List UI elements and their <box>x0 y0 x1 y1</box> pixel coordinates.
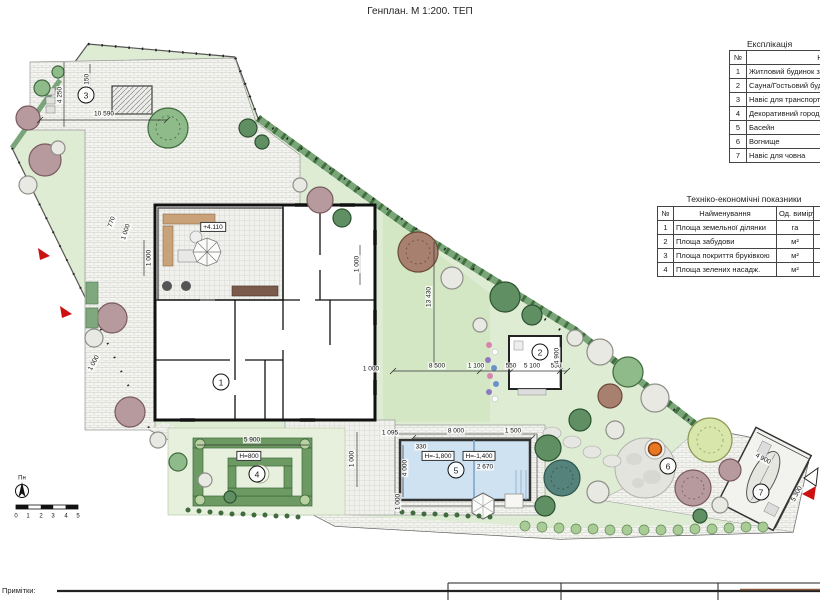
fire-pit <box>645 439 665 459</box>
table-row: 2 Сауна/Гостьовий буд <box>730 79 820 93</box>
table-row: 2 Площа забудови м² <box>658 235 820 249</box>
explication-table: № Найменування 1 Житловий будинок з 2 Са… <box>729 50 820 163</box>
dimension-label: 4 000 <box>401 459 408 477</box>
tep-col-value <box>814 207 820 221</box>
dimension-label: 4 900 <box>553 347 560 365</box>
dimension-label: 1 <box>26 514 29 521</box>
table-row: 7 Навіс для човна <box>730 149 820 163</box>
dimension-label: 1 000 <box>353 255 360 273</box>
tep-col-name: Найменування <box>674 207 777 221</box>
dimension-label: 2 <box>39 514 42 521</box>
dimension-label: 1 000 <box>362 365 380 372</box>
dimension-label: 5 900 <box>243 436 261 443</box>
table-row: 3 Навіс для транспорту <box>730 93 820 107</box>
north-compass-icon <box>16 482 29 498</box>
table-row: 4 Декоративний город <box>730 107 820 121</box>
scale-bar <box>16 505 78 509</box>
dimension-label: 8 500 <box>428 362 446 369</box>
dimension-label: 3 <box>51 514 54 521</box>
dimension-label: 5 100 <box>523 362 541 369</box>
tep-title: Техніко-економічні показники <box>664 194 820 204</box>
callout-number: 7 <box>753 484 770 501</box>
dimension-label: H=-1,400 <box>463 451 496 461</box>
dimension-label: 13 430 <box>425 286 432 308</box>
table-row: 6 Вогнище <box>730 135 820 149</box>
dimension-label: +4.110 <box>200 222 226 232</box>
house <box>155 205 375 420</box>
dimension-label: 330 <box>415 443 428 450</box>
dimension-label: 1 095 <box>381 429 399 436</box>
explication-col-no: № <box>730 51 747 65</box>
dimension-label: Пн <box>18 476 26 483</box>
callout-number: 4 <box>249 466 266 483</box>
title-block <box>57 583 820 600</box>
dimension-label: 4 250 <box>56 86 63 104</box>
callout-number: 6 <box>660 458 677 475</box>
table-row: 3 Площа покриття бруківкою м² <box>658 249 820 263</box>
explication-title: Експлікація <box>747 39 792 49</box>
dimension-label: 10 590 <box>93 110 115 117</box>
site-plan-drawing <box>0 0 820 600</box>
dimension-label: 550 <box>505 362 518 369</box>
callout-number: 5 <box>448 462 465 479</box>
table-row: 1 Площа земельної ділянки га <box>658 221 820 235</box>
notes-label: Примітки: <box>2 586 36 595</box>
table-row: 4 Площа зелених насадж. м² <box>658 263 820 277</box>
drawing-sheet: Генплан. М 1:200. ТЕП <box>0 0 820 600</box>
table-row: 1 Житловий будинок з <box>730 65 820 79</box>
tep-col-unit: Од. виміру <box>777 207 814 221</box>
dimension-label: 4 <box>64 514 67 521</box>
dimension-label: H=800 <box>236 451 261 461</box>
callout-number: 3 <box>78 87 95 104</box>
tep-table: № Найменування Од. виміру 1 Площа земель… <box>657 206 820 277</box>
dimension-label: 1 100 <box>467 362 485 369</box>
dimension-label: 1 000 <box>394 493 401 511</box>
dimension-label: 1 000 <box>145 249 152 267</box>
explication-col-name: Найменування <box>747 51 820 65</box>
dimension-label: 0 <box>14 514 17 521</box>
dimension-label: 5 <box>76 514 79 521</box>
dimension-label: 2 670 <box>476 463 494 470</box>
table-row: 5 Басейн <box>730 121 820 135</box>
tep-col-no: № <box>658 207 674 221</box>
dimension-label: H=-1,800 <box>422 451 455 461</box>
callout-number: 2 <box>532 344 549 361</box>
dimension-label: 1 500 <box>504 427 522 434</box>
dimension-label: 1 000 <box>348 450 355 468</box>
callout-number: 1 <box>213 374 230 391</box>
dimension-label: 8 000 <box>447 427 465 434</box>
